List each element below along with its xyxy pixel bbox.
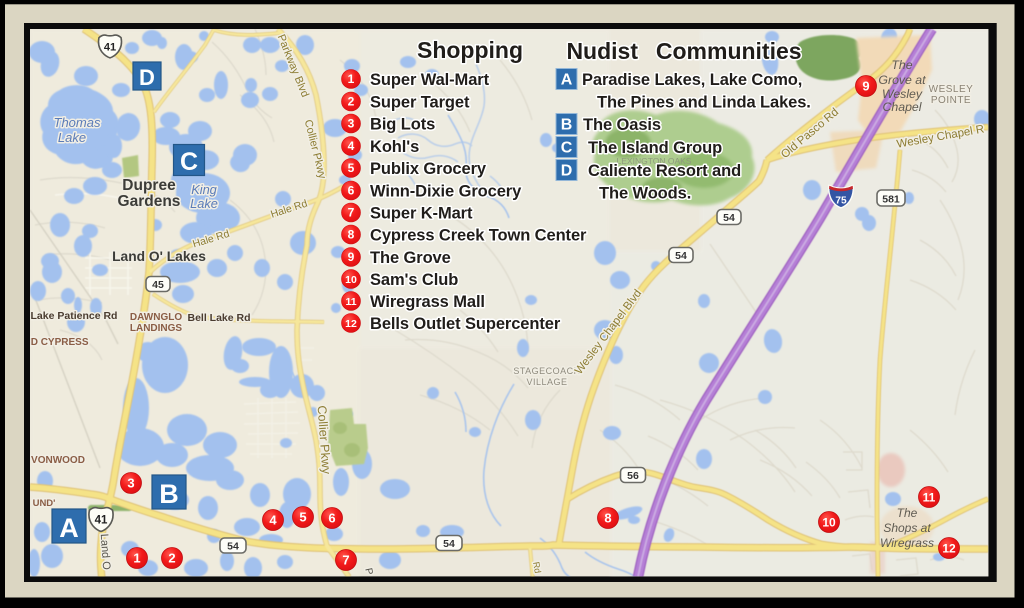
svg-text:D: D (561, 163, 573, 180)
svg-text:The: The (891, 58, 912, 72)
svg-text:6: 6 (348, 184, 355, 198)
svg-text:11: 11 (345, 296, 356, 308)
svg-text:Grove at: Grove at (878, 73, 926, 87)
svg-text:5: 5 (348, 161, 355, 175)
svg-text:Bells Outlet Supercenter: Bells Outlet Supercenter (370, 315, 561, 333)
svg-text:581: 581 (882, 194, 900, 206)
svg-text:A: A (59, 513, 79, 543)
svg-text:Thomas: Thomas (54, 115, 101, 130)
svg-text:3: 3 (348, 117, 355, 131)
svg-text:C: C (561, 140, 573, 157)
svg-text:10: 10 (345, 274, 357, 286)
svg-text:8: 8 (348, 228, 355, 242)
svg-text:Caliente Resort and: Caliente Resort and (588, 162, 741, 180)
svg-text:12: 12 (345, 318, 357, 330)
svg-text:1: 1 (348, 72, 355, 86)
svg-text:3: 3 (127, 476, 134, 491)
svg-text:The Grove: The Grove (370, 249, 451, 267)
svg-text:2: 2 (348, 95, 355, 109)
svg-text:4: 4 (269, 513, 277, 528)
svg-text:56: 56 (627, 470, 639, 482)
svg-text:9: 9 (862, 79, 869, 94)
svg-text:Wiregrass: Wiregrass (880, 536, 934, 550)
svg-text:Super K-Mart: Super K-Mart (370, 204, 473, 222)
svg-text:The Woods.: The Woods. (599, 184, 691, 202)
svg-text:Winn-Dixie Grocery: Winn-Dixie Grocery (370, 182, 522, 200)
svg-text:75: 75 (835, 196, 847, 207)
svg-text:6: 6 (328, 511, 335, 526)
svg-text:Rd: Rd (531, 561, 543, 574)
svg-text:Wiregrass Mall: Wiregrass Mall (370, 293, 485, 311)
svg-text:LANDINGS: LANDINGS (130, 323, 183, 334)
svg-text:VILLAGE: VILLAGE (526, 377, 567, 387)
svg-text:Lake: Lake (58, 130, 86, 145)
svg-text:STAGECOACH: STAGECOACH (513, 366, 580, 376)
svg-text:B: B (561, 117, 573, 134)
svg-text:Big Lots: Big Lots (370, 115, 435, 133)
svg-text:Paradise Lakes, Lake Como,: Paradise Lakes, Lake Como, (582, 71, 802, 89)
svg-text:Lake Patience Rd: Lake Patience Rd (31, 310, 118, 322)
svg-text:Kohl's: Kohl's (370, 138, 419, 156)
svg-text:Sam's Club: Sam's Club (370, 271, 458, 289)
svg-text:Bell Lake Rd: Bell Lake Rd (187, 312, 250, 324)
svg-text:C: C (180, 148, 198, 176)
svg-text:Dupree: Dupree (122, 177, 176, 194)
svg-text:POINTE: POINTE (931, 95, 971, 106)
svg-text:8: 8 (604, 511, 611, 526)
svg-text:Wesley: Wesley (882, 87, 923, 101)
svg-text:VONWOOD: VONWOOD (31, 455, 85, 466)
svg-text:4: 4 (348, 139, 355, 153)
svg-text:10: 10 (822, 516, 836, 530)
svg-text:9: 9 (348, 250, 355, 264)
svg-text:54: 54 (723, 212, 735, 224)
svg-text:A: A (561, 72, 573, 89)
svg-text:The: The (897, 506, 918, 520)
svg-text:Cypress Creek Town Center: Cypress Creek Town Center (370, 226, 587, 244)
svg-text:UND': UND' (33, 498, 56, 509)
svg-text:11: 11 (923, 491, 936, 505)
svg-text:WESLEY: WESLEY (929, 84, 974, 95)
svg-text:Super Target: Super Target (370, 93, 470, 111)
svg-text:54: 54 (675, 250, 687, 262)
svg-text:5: 5 (299, 510, 306, 525)
svg-text:54: 54 (443, 538, 455, 550)
svg-text:Land O' Lakes: Land O' Lakes (112, 249, 206, 264)
svg-text:54: 54 (227, 541, 239, 553)
svg-text:7: 7 (342, 553, 349, 568)
svg-text:1: 1 (133, 551, 140, 566)
svg-text:B: B (159, 479, 179, 509)
svg-text:2: 2 (168, 551, 175, 566)
svg-text:Shopping: Shopping (417, 37, 523, 63)
svg-text:45: 45 (152, 279, 164, 291)
svg-text:Land O: Land O (98, 533, 113, 570)
svg-text:Gardens: Gardens (118, 193, 181, 210)
svg-text:Chapel: Chapel (883, 100, 923, 114)
svg-text:Super Wal-Mart: Super Wal-Mart (370, 71, 490, 89)
svg-text:DAWNGLO: DAWNGLO (130, 312, 182, 323)
svg-text:12: 12 (942, 542, 956, 556)
svg-text:41: 41 (104, 42, 116, 54)
svg-text:D: D (139, 65, 155, 90)
svg-text:ND CYPRESS: ND CYPRESS (23, 337, 88, 348)
svg-text:King: King (191, 182, 217, 197)
svg-text:7: 7 (348, 206, 355, 220)
svg-text:Lake: Lake (190, 196, 218, 211)
svg-text:Nudist Communities: Nudist Communities (566, 38, 801, 64)
svg-text:The Island Group: The Island Group (588, 139, 722, 157)
svg-text:The Pines and Linda Lakes.: The Pines and Linda Lakes. (597, 93, 811, 111)
svg-text:Shops at: Shops at (883, 521, 931, 535)
svg-text:41: 41 (95, 515, 108, 527)
svg-text:The Oasis: The Oasis (583, 116, 661, 134)
svg-text:Publix Grocery: Publix Grocery (370, 160, 487, 178)
